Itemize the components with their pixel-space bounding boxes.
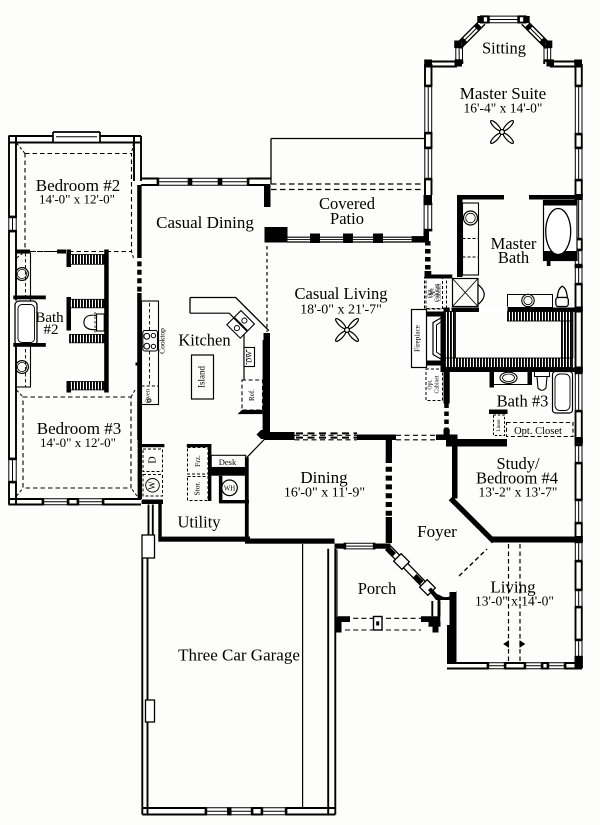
svg-text:Linen: Linen [496, 419, 502, 432]
svg-text:Casual Dining: Casual Dining [156, 213, 254, 232]
svg-text:Opt.: Opt. [430, 287, 436, 298]
svg-text:Frz.: Frz. [193, 455, 202, 467]
svg-text:Kitchen: Kitchen [178, 331, 230, 350]
svg-text:14'-0" x 12'-0": 14'-0" x 12'-0" [39, 192, 115, 207]
svg-text:Three Car Garage: Three Car Garage [178, 646, 300, 665]
svg-text:DW: DW [246, 351, 254, 363]
svg-text:Casual Living: Casual Living [294, 284, 387, 303]
svg-text:Stor.: Stor. [193, 481, 202, 495]
svg-text:Utility: Utility [177, 513, 221, 532]
svg-text:Bath #3: Bath #3 [497, 392, 549, 411]
svg-text:Foyer: Foyer [417, 522, 457, 541]
svg-text:Opt.: Opt. [428, 379, 434, 390]
svg-text:D: D [148, 456, 159, 463]
svg-text:Patio: Patio [330, 209, 364, 228]
svg-text:W: W [147, 481, 157, 490]
svg-text:18'-0" x 21'-7": 18'-0" x 21'-7" [300, 303, 382, 318]
svg-text:#2: #2 [44, 322, 59, 338]
svg-text:13'-2" x 13'-7": 13'-2" x 13'-7" [479, 485, 558, 500]
svg-text:Opt. Closet: Opt. Closet [514, 426, 562, 437]
svg-text:Cabinet: Cabinet [435, 375, 441, 393]
svg-text:16'-0" x 11'-9": 16'-0" x 11'-9" [284, 486, 365, 501]
svg-text:Porch: Porch [358, 579, 397, 598]
svg-text:Island: Island [197, 366, 207, 388]
svg-text:Ref.: Ref. [248, 389, 256, 401]
svg-text:Desk: Desk [219, 457, 237, 467]
svg-text:Dining: Dining [300, 468, 348, 487]
svg-text:14'-0" x 12'-0": 14'-0" x 12'-0" [40, 435, 116, 450]
svg-text:Bath: Bath [498, 248, 530, 267]
svg-text:16'-4" x 14'-0": 16'-4" x 14'-0" [464, 101, 543, 116]
svg-text:Cabinet: Cabinet [437, 283, 443, 301]
svg-text:Sitting: Sitting [482, 39, 526, 58]
svg-text:WH: WH [224, 486, 235, 493]
svg-text:13'-0" x 14'-0": 13'-0" x 14'-0" [475, 594, 554, 609]
svg-text:Cooktop: Cooktop [158, 328, 167, 354]
svg-text:Fireplace: Fireplace [414, 325, 422, 352]
